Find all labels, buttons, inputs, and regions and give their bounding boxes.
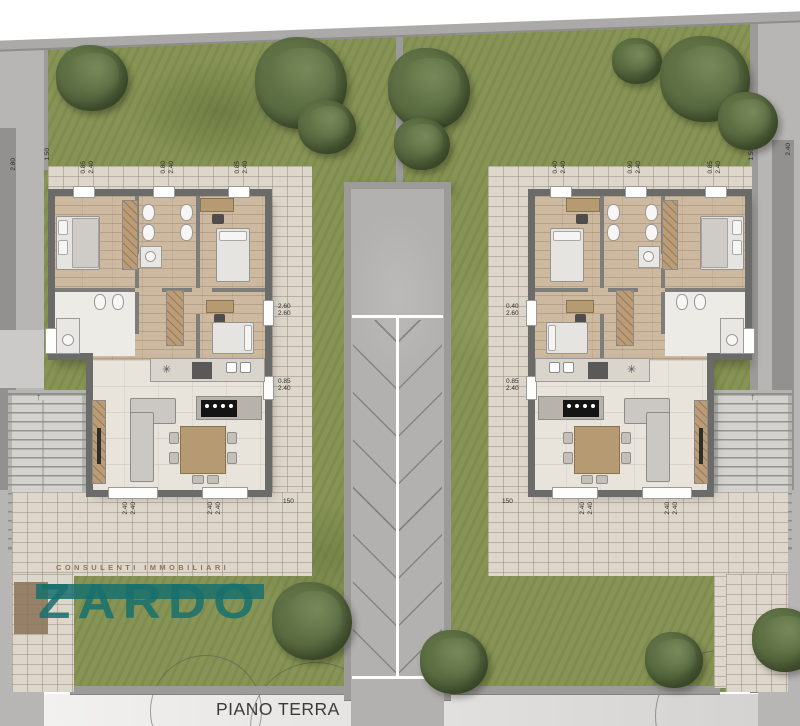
dining-chair [563,432,573,444]
toilet [94,294,106,310]
right-unit-wall-left [528,189,535,497]
desk [200,198,234,212]
dining-chair [169,432,179,444]
dimension-label: 2.402.40 [579,502,594,515]
right-interior-wall [600,196,604,288]
double-bed-blanket [72,218,99,268]
left-unit-wall-right [265,189,272,497]
cooktop-burner [213,404,217,408]
left-window-bottom-1 [108,487,158,499]
right-unit-wall-day-right [707,355,714,497]
bed-pillow [732,220,742,235]
stairs-up-arrow-icon: ↑ [36,392,41,403]
desk [566,300,594,313]
dimension-label: 2.602.60 [278,303,291,317]
dimension-label: 0.852.40 [80,161,95,174]
bush [272,582,352,660]
staircase-left-rail [42,400,44,500]
bathroom-sink [142,204,155,221]
right-interior-wall [535,288,588,292]
toilet [180,204,193,221]
bed-pillow [244,325,252,351]
oven [588,362,608,379]
dimension-label: 150 [502,498,513,505]
left-interior-wall [55,288,135,292]
wardrobe [616,290,634,346]
staircase-right-rail [756,400,758,500]
neighbor-walkway-left [0,330,44,388]
desk [566,198,600,212]
tree [388,48,470,130]
bathtub-drain [726,334,738,346]
dimension-label: 0.902.40 [627,161,642,174]
right-entrance-door [743,328,755,354]
driveway-center-line [396,318,399,678]
wardrobe [122,200,138,270]
cooktop-burner [567,404,571,408]
left-interior-wall [135,268,139,288]
shower-drain [145,251,156,262]
dimension-label: 2.40 [785,143,792,156]
bed-pillow [553,231,581,241]
cooktop-burner [575,404,579,408]
bathtub-drain [62,334,74,346]
bathroom-sink [142,224,155,241]
bidet [112,294,124,310]
bed-pillow [58,240,68,255]
left-interior-wall [212,288,265,292]
hood-fan-icon: ✳ [162,363,171,376]
logo-brand: ZARDO [38,574,261,630]
dimension-label: 0.402.40 [552,161,567,174]
desk-chair [212,214,224,224]
right-interior-wall [661,292,665,334]
kitchen-sink [549,362,560,373]
logo: CONSULENTI IMMOBILIARI ZARDO [8,560,268,640]
right-window-top-3 [705,186,727,198]
left-window-top-2 [153,186,175,198]
bidet [676,294,688,310]
floor-plan-canvas: ↑ ↑ [0,0,800,726]
tree [718,92,778,150]
left-window-top-1 [73,186,95,198]
tree [298,100,356,154]
cooktop-burner [591,404,595,408]
bed-pillow [58,220,68,235]
tree [612,38,662,84]
cooktop-burner [205,404,209,408]
bed-pillow [219,231,247,241]
dimension-label: 0.402.60 [506,303,519,317]
dining-table [574,426,620,474]
dimension-label: 0.852.40 [278,378,291,392]
tree [56,45,128,111]
cooktop-burner [229,404,233,408]
bathroom-sink [645,204,658,221]
sofa [646,412,670,482]
dimension-label: 150 [283,498,294,505]
dining-chair [563,452,573,464]
dimension-label: 1.50 [44,148,51,161]
left-side-door [263,300,274,326]
right-interior-wall [600,314,604,360]
tv-screen [97,428,101,464]
dining-chair [596,475,608,484]
tv-screen [699,428,703,464]
kitchen-sink [240,362,251,373]
kitchen-sink [563,362,574,373]
dining-chair [621,452,631,464]
right-side-door [526,300,537,326]
right-window-top-1 [550,186,572,198]
cooktop [201,400,237,417]
left-interior-wall [196,314,200,360]
bidet [180,224,193,241]
right-interior-wall [665,288,745,292]
bed-pillow [732,240,742,255]
kitchen-sink [226,362,237,373]
driveway-chevron-left [353,320,396,676]
oven [192,362,212,379]
left-interior-wall [135,292,139,334]
driveway-chevron-right [399,320,442,676]
right-window-bottom-1 [642,487,692,499]
patio-left-side [272,166,312,522]
dimension-label: 0.852.40 [506,378,519,392]
right-interior-wall [661,268,665,288]
dimension-label: 0.802.40 [160,161,175,174]
wardrobe [662,200,678,270]
bed-pillow [548,325,556,351]
dining-chair [207,475,219,484]
wardrobe [166,290,184,346]
dining-chair [192,475,204,484]
right-window-top-2 [625,186,647,198]
bush [645,632,703,688]
dimension-label: 2.402.40 [122,502,137,515]
dimension-label: 2.402.40 [207,502,222,515]
dining-chair [169,452,179,464]
double-bed-blanket [701,218,728,268]
right-window-bottom-2 [552,487,598,499]
dining-chair [227,452,237,464]
cooktop [563,400,599,417]
patio-right-side [488,166,528,522]
bidet [607,224,620,241]
desk [206,300,234,313]
toilet [607,204,620,221]
logo-tagline: CONSULENTI IMMOBILIARI [56,563,229,572]
tree [394,118,450,170]
hood-fan-icon: ✳ [627,363,636,376]
shower-drain [643,251,654,262]
bush [420,630,488,694]
dining-table [180,426,226,474]
plan-title: PIANO TERRA [216,699,340,720]
terrace-right [488,492,788,576]
dining-chair [581,475,593,484]
dining-chair [227,432,237,444]
dimension-label: 0.852.40 [707,161,722,174]
driveway-wall-right [444,182,451,701]
toilet [694,294,706,310]
sofa [130,412,154,482]
garden-wall-bottom-left [70,686,350,695]
dimension-label: 0.852.40 [234,161,249,174]
cooktop-burner [221,404,225,408]
left-window-top-3 [228,186,250,198]
bathroom-sink [645,224,658,241]
stairs-up-arrow-icon: ↑ [750,392,755,403]
left-window-bottom-2 [202,487,248,499]
cooktop-burner [583,404,587,408]
desk-chair [576,214,588,224]
dimension-label: 2.402.40 [664,502,679,515]
dining-chair [621,432,631,444]
dimension-label: 2.80 [10,158,17,171]
